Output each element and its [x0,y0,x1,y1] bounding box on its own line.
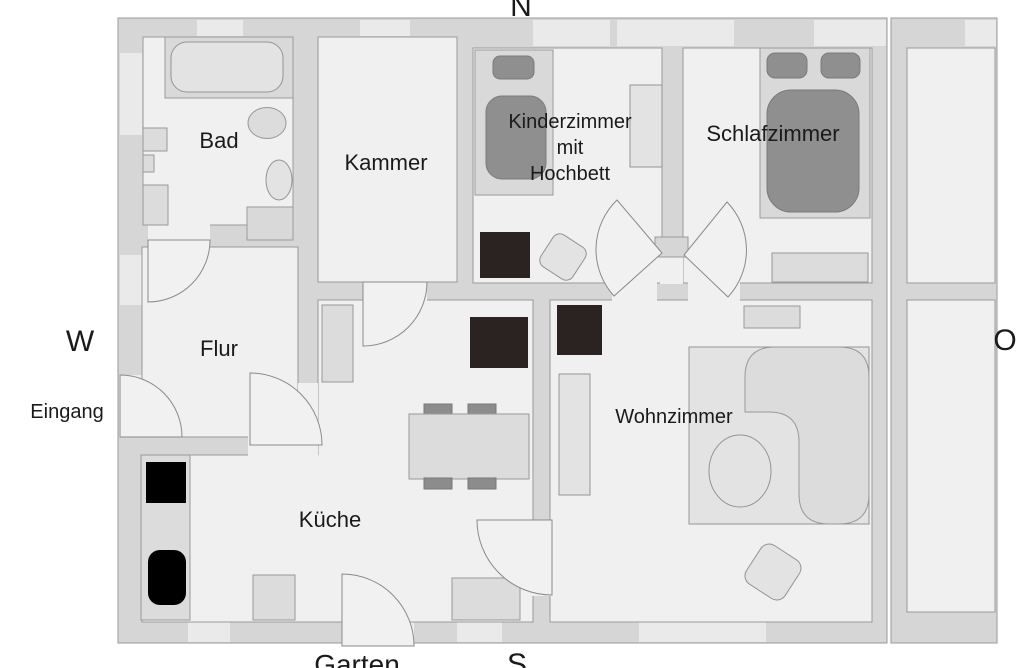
label-kueche: Küche [299,507,361,532]
window-south-kueche-east [457,622,502,642]
east-wing-lower-floor [907,300,995,612]
compass-east: O [993,324,1016,357]
window-west-flur [120,255,142,305]
label-kammer: Kammer [344,150,427,175]
label-eingang: Eingang [30,401,103,423]
window-north-east [814,20,886,46]
round-coffee-table [709,435,771,507]
dining-chair-2 [468,404,496,415]
wall-shelf [744,306,800,328]
floorplan-canvas: Bad Kammer Kinderzimmer mit Hochbett Sch… [0,0,1028,668]
label-kinderzimmer-line2: mit [557,137,584,159]
hall-cabinet [322,305,353,382]
kitchen-dark-cabinet [470,317,528,368]
window-north-kammer [360,20,410,36]
washbasin [248,108,286,139]
kitchen-sink [148,550,186,605]
dining-chair-1 [424,404,452,415]
loft-bed-pillow [493,56,534,79]
compass-west: W [66,325,95,358]
window-west-bad [120,53,142,135]
window-south-kueche-west [188,622,230,642]
bath-fixture-1 [143,128,167,151]
label-wohnzimmer: Wohnzimmer [615,406,733,428]
window-north-east-wing [965,20,996,46]
dining-chair-3 [424,478,452,489]
window-south-wohnzimmer [639,622,766,642]
label-garten: Garten [314,649,400,668]
kitchen-cabinet-south-2 [452,578,520,620]
label-bad: Bad [199,128,238,153]
bath-fixture-3 [143,185,168,225]
compass-south: S [507,648,527,668]
floorplan-drawing: Bad Kammer Kinderzimmer mit Hochbett Sch… [0,0,1028,668]
bed-pillow-right [821,53,860,78]
dining-table [409,414,529,479]
kinderzimmer-wardrobe [630,85,662,167]
east-wing-upper-floor [907,48,995,283]
label-kinderzimmer-line1: Kinderzimmer [508,111,632,133]
stove [146,462,186,503]
bookshelf [559,374,590,495]
compass-north: N [510,0,532,23]
window-north-kinderzimmer [533,20,610,46]
bath-fixture-2 [143,155,154,172]
label-kinderzimmer-line3: Hochbett [530,163,610,185]
living-dark-cabinet [557,305,602,355]
double-bed-mattress [767,90,859,212]
bed-pillow-left [767,53,807,78]
label-schlafzimmer: Schlafzimmer [706,121,839,146]
toilet [266,160,292,200]
dining-chair-4 [468,478,496,489]
shower-tray [247,207,293,240]
kinderzimmer-dark-cabinet [480,232,530,278]
window-north-schlafzimmer [617,20,734,46]
kitchen-cabinet-south-1 [253,575,295,620]
window-north-bad [197,20,243,36]
bathtub [171,42,283,92]
schlafzimmer-sideboard [772,253,868,282]
label-flur: Flur [200,336,238,361]
